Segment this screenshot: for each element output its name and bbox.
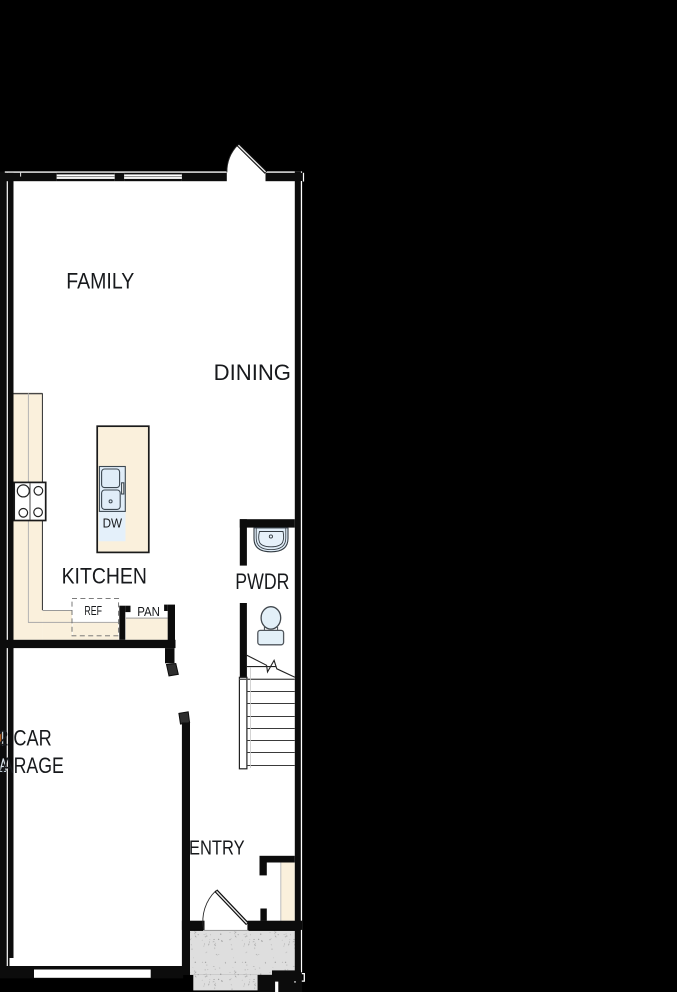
svg-text:GARAGE: GARAGE [0,753,64,778]
svg-text:ENTRY: ENTRY [189,836,245,859]
svg-text:PWDR: PWDR [235,569,289,594]
svg-text:PAN: PAN [137,604,160,619]
svg-text:FAMILY: FAMILY [66,268,134,293]
svg-text:DW: DW [103,515,123,530]
svg-text:2 CAR: 2 CAR [0,726,52,751]
svg-text:DINING: DINING [214,360,291,385]
svg-text:KITCHEN: KITCHEN [62,563,147,588]
svg-text:REF: REF [84,603,102,618]
